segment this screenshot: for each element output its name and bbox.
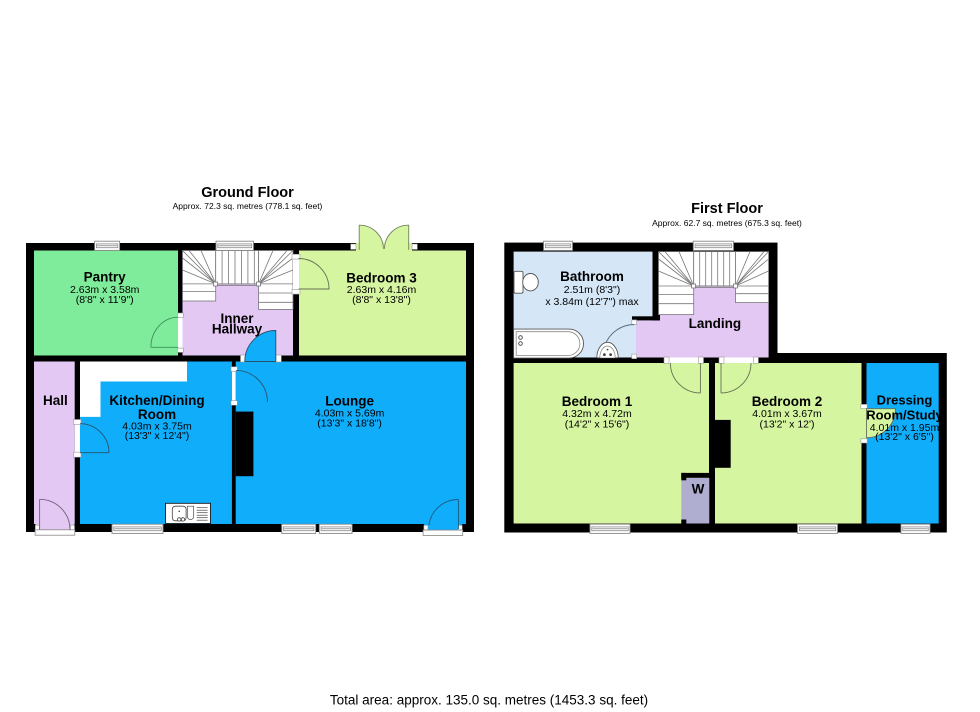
svg-text:Approx. 62.7 sq. metres (675.3: Approx. 62.7 sq. metres (675.3 sq. feet) [652, 218, 802, 228]
svg-text:(8'8" x 13'8"): (8'8" x 13'8") [352, 294, 411, 306]
svg-text:Total area: approx. 135.0 sq.: Total area: approx. 135.0 sq. metres (14… [330, 693, 648, 708]
svg-text:Ground Floor: Ground Floor [201, 185, 294, 201]
svg-text:Approx. 72.3 sq. metres (778.1: Approx. 72.3 sq. metres (778.1 sq. feet) [173, 201, 323, 211]
svg-text:First Floor: First Floor [691, 201, 763, 217]
svg-text:(14'2" x 15'6"): (14'2" x 15'6") [565, 418, 630, 430]
svg-text:Dressing: Dressing [877, 392, 933, 407]
svg-text:(13'2" x 6'5"): (13'2" x 6'5") [875, 431, 934, 443]
svg-text:Lounge: Lounge [325, 393, 374, 408]
svg-text:Landing: Landing [689, 316, 742, 331]
svg-text:Hall: Hall [43, 393, 68, 408]
svg-text:(13'3" x 18'8"): (13'3" x 18'8") [317, 418, 382, 430]
svg-text:Hallway: Hallway [212, 322, 263, 337]
svg-text:W: W [692, 482, 705, 497]
svg-text:Bedroom 1: Bedroom 1 [562, 394, 633, 409]
svg-text:(8'8" x 11'9"): (8'8" x 11'9") [76, 294, 134, 306]
svg-text:Pantry: Pantry [84, 270, 127, 285]
svg-text:Bedroom 2: Bedroom 2 [752, 394, 823, 409]
svg-text:Room/Study: Room/Study [866, 407, 943, 422]
svg-text:(13'2" x 12'): (13'2" x 12') [759, 418, 814, 430]
svg-text:Bathroom: Bathroom [560, 269, 624, 284]
svg-text:Room: Room [138, 407, 176, 422]
svg-text:x 3.84m (12'7") max: x 3.84m (12'7") max [545, 296, 639, 308]
svg-text:Kitchen/Dining: Kitchen/Dining [109, 393, 204, 408]
svg-text:2.51m (8'3"): 2.51m (8'3") [564, 284, 621, 296]
svg-text:(13'3" x 12'4"): (13'3" x 12'4") [125, 430, 190, 442]
